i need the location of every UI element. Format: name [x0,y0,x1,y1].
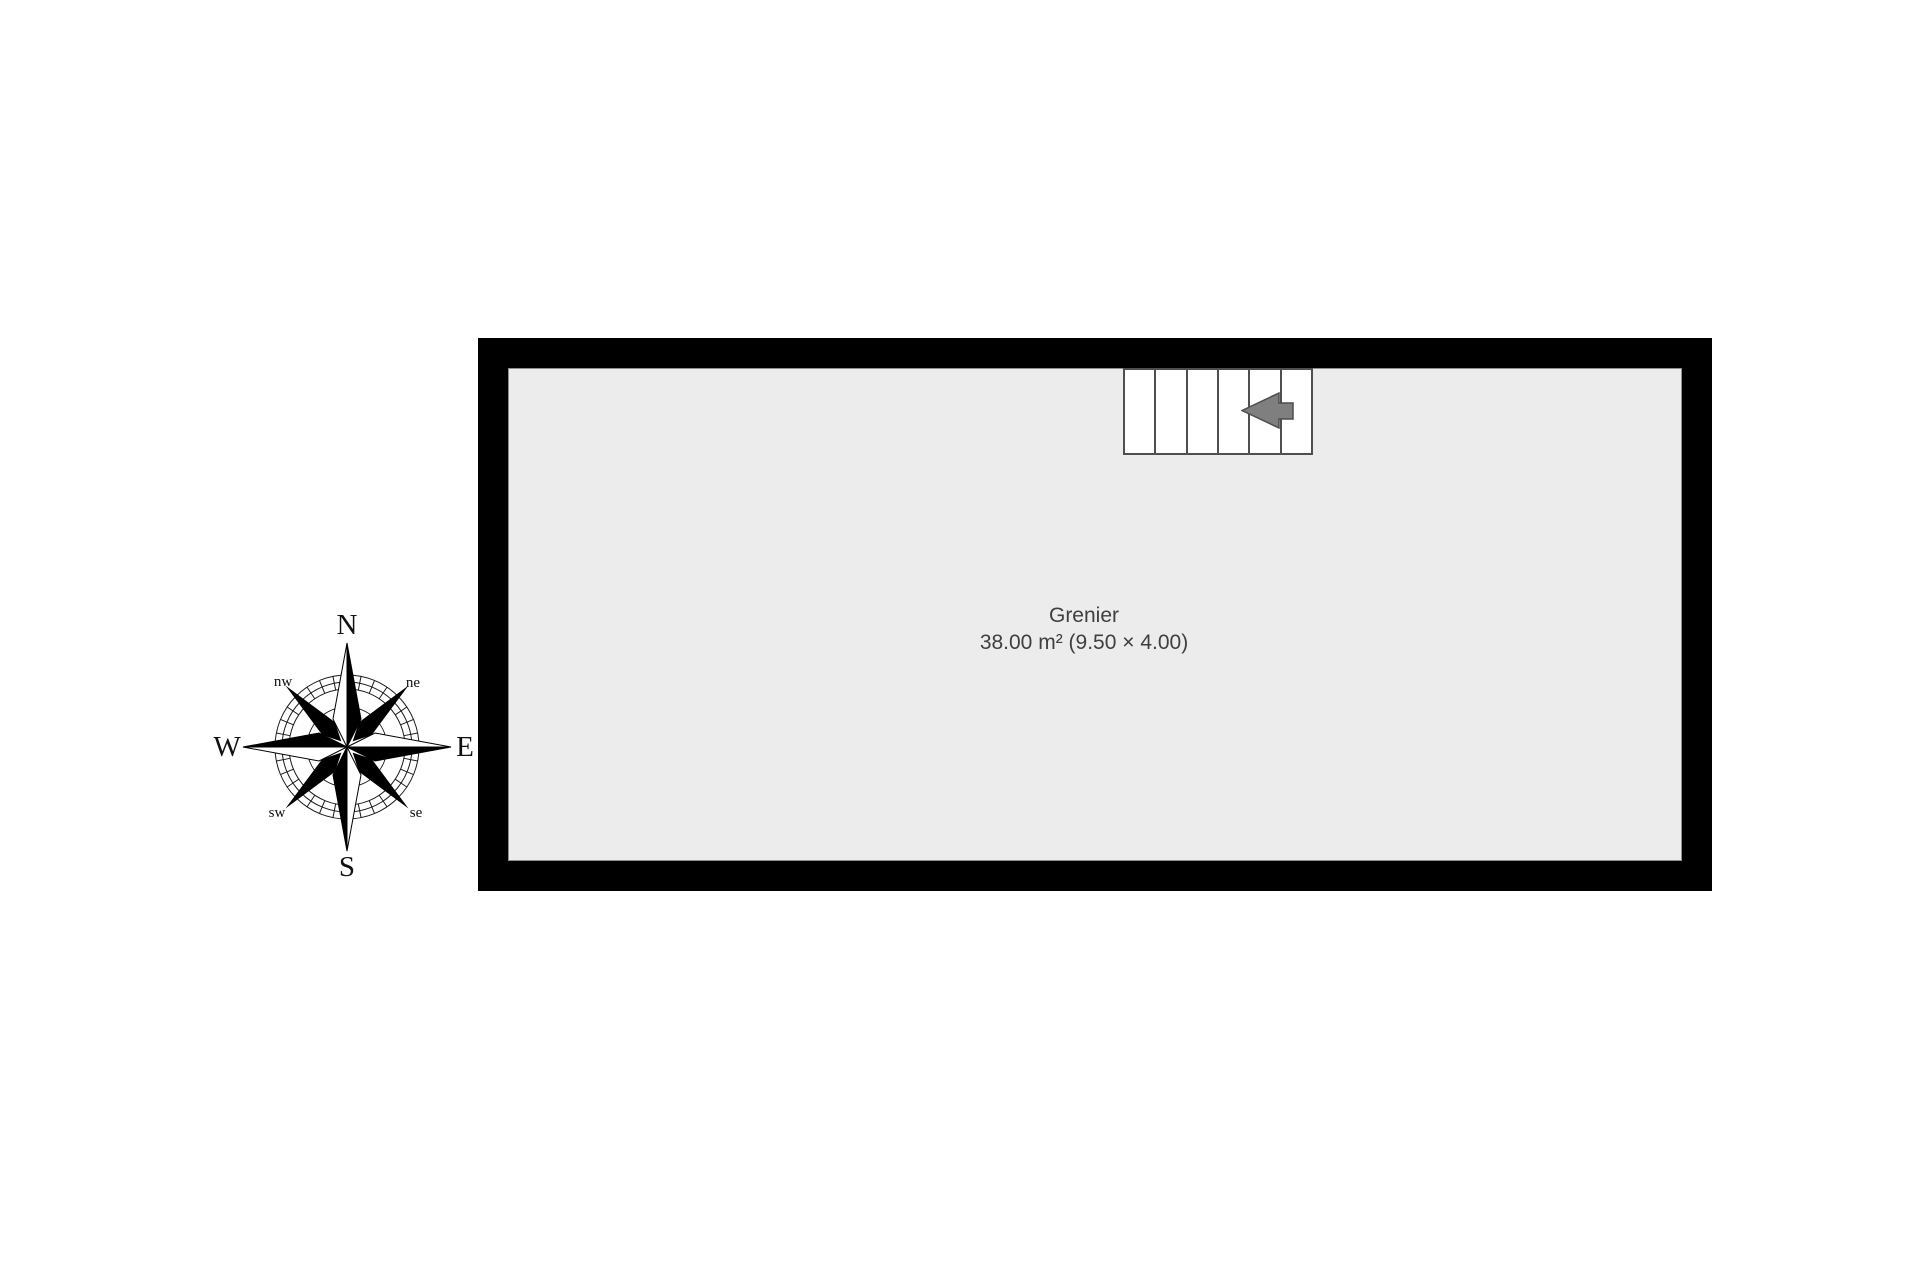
room-dimensions: 38.00 m² (9.50 × 4.00) [884,629,1284,656]
left-arrow-icon [1241,391,1295,431]
compass-label-southwest: sw [269,805,286,821]
compass-label-south: S [339,851,355,883]
compass-label-north: N [337,609,358,641]
compass-label-east: E [456,731,474,763]
compass-label-west: W [213,731,241,763]
compass-label-northwest: nw [274,674,293,690]
compass-rose: N E S W nw ne sw se [197,597,497,897]
room-label: Grenier 38.00 m² (9.50 × 4.00) [884,602,1284,656]
stair-tread [1156,370,1187,453]
stair-tread [1188,370,1219,453]
compass-label-southeast: se [410,805,423,821]
floorplan-canvas: Grenier 38.00 m² (9.50 × 4.00) [0,0,1920,1280]
compass-label-northeast: ne [406,675,421,691]
room-name: Grenier [884,602,1284,629]
stair-tread [1125,370,1156,453]
